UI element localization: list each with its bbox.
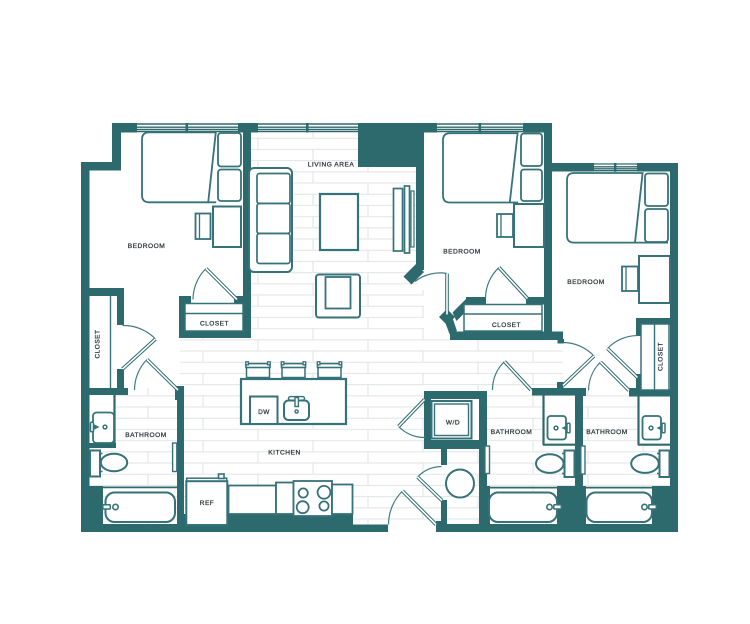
svg-text:KITCHEN: KITCHEN <box>268 450 300 457</box>
svg-text:BATHROOM: BATHROOM <box>125 432 167 439</box>
svg-text:DW: DW <box>258 409 270 416</box>
svg-text:REF: REF <box>200 500 215 507</box>
svg-text:CLOSET: CLOSET <box>492 322 521 329</box>
svg-text:BEDROOM: BEDROOM <box>567 279 605 286</box>
svg-text:CLOSET: CLOSET <box>658 342 665 371</box>
svg-text:LIVING AREA: LIVING AREA <box>308 162 355 169</box>
svg-text:BEDROOM: BEDROOM <box>128 243 166 250</box>
svg-text:BEDROOM: BEDROOM <box>443 249 481 256</box>
svg-text:W/D: W/D <box>446 420 460 427</box>
svg-text:CLOSET: CLOSET <box>95 329 102 358</box>
svg-text:BATHROOM: BATHROOM <box>586 429 628 436</box>
svg-text:BATHROOM: BATHROOM <box>491 429 533 436</box>
svg-text:CLOSET: CLOSET <box>200 321 229 328</box>
